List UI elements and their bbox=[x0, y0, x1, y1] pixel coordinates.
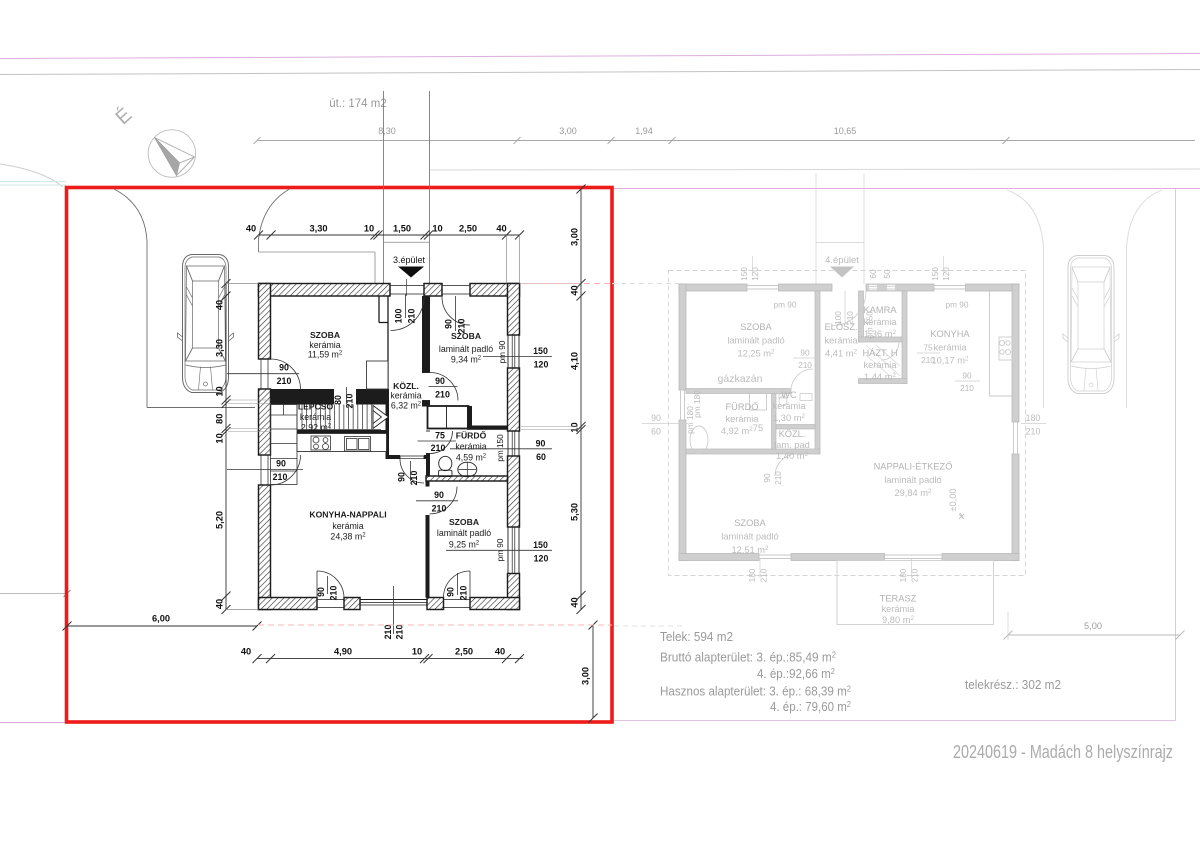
svg-text:210: 210 bbox=[432, 504, 447, 514]
svg-text:KONYHA: KONYHA bbox=[930, 329, 970, 339]
svg-text:120: 120 bbox=[534, 554, 549, 564]
svg-text:laminált padló: laminált padló bbox=[727, 336, 784, 346]
svg-text:TERASZ: TERASZ bbox=[880, 594, 917, 604]
svg-text:laminált padló: laminált padló bbox=[721, 532, 778, 542]
svg-text:4,10: 4,10 bbox=[570, 352, 580, 370]
svg-text:150: 150 bbox=[533, 540, 548, 550]
svg-text:120: 120 bbox=[534, 360, 549, 370]
svg-text:180: 180 bbox=[747, 568, 757, 582]
svg-text:60: 60 bbox=[868, 269, 878, 279]
svg-text:90: 90 bbox=[276, 459, 286, 469]
svg-text:9,34 m2: 9,34 m2 bbox=[451, 355, 482, 365]
svg-text:laminált padló: laminált padló bbox=[884, 475, 941, 485]
svg-text:90: 90 bbox=[434, 490, 444, 500]
svg-text:4,90: 4,90 bbox=[334, 647, 352, 657]
svg-text:60: 60 bbox=[651, 427, 661, 437]
svg-text:24,38 m2: 24,38 m2 bbox=[330, 532, 366, 542]
svg-text:90: 90 bbox=[446, 587, 456, 597]
svg-text:Telek: 594 m2: Telek: 594 m2 bbox=[660, 629, 733, 644]
svg-text:10: 10 bbox=[364, 224, 374, 234]
svg-text:kerámia: kerámia bbox=[933, 343, 967, 353]
svg-text:12,51 m2: 12,51 m2 bbox=[731, 545, 769, 555]
svg-text:9,80 m2: 9,80 m2 bbox=[882, 615, 914, 625]
svg-text:90: 90 bbox=[316, 587, 326, 597]
svg-text:1,40 m2: 1,40 m2 bbox=[776, 451, 808, 461]
svg-text:1,50: 1,50 bbox=[393, 224, 411, 234]
svg-text:40: 40 bbox=[215, 599, 225, 609]
svg-text:3,30: 3,30 bbox=[309, 224, 327, 234]
svg-text:pm 90: pm 90 bbox=[945, 300, 968, 310]
svg-text:120: 120 bbox=[941, 267, 951, 281]
svg-text:pm 180: pm 180 bbox=[692, 390, 702, 418]
svg-text:Hasznos alapterület: 3. ép.: 6: Hasznos alapterület: 3. ép.: 68,39 m2 bbox=[660, 684, 851, 699]
svg-text:±0,00: ±0,00 bbox=[948, 488, 958, 511]
svg-text:100: 100 bbox=[394, 309, 404, 324]
svg-text:40: 40 bbox=[496, 224, 506, 234]
svg-text:SZOBA: SZOBA bbox=[310, 330, 340, 340]
svg-text:90: 90 bbox=[536, 438, 546, 448]
svg-text:2,92 m2: 2,92 m2 bbox=[301, 423, 332, 433]
svg-text:210: 210 bbox=[773, 471, 783, 485]
svg-text:ELŐSZ.: ELŐSZ. bbox=[824, 322, 857, 332]
svg-text:60: 60 bbox=[536, 452, 546, 462]
svg-text:50: 50 bbox=[882, 269, 892, 279]
svg-text:90: 90 bbox=[397, 472, 407, 482]
svg-text:40: 40 bbox=[246, 224, 256, 234]
svg-text:3,00: 3,00 bbox=[581, 667, 591, 685]
svg-text:20240619 - Madách 8 helyszínra: 20240619 - Madách 8 helyszínrajz bbox=[953, 741, 1173, 762]
svg-text:3,30: 3,30 bbox=[215, 339, 225, 357]
svg-text:150: 150 bbox=[739, 267, 749, 281]
svg-text:5,30: 5,30 bbox=[570, 503, 580, 521]
svg-text:LÉPCSŐ: LÉPCSŐ bbox=[298, 401, 334, 412]
svg-text:4,59 m2: 4,59 m2 bbox=[456, 452, 487, 462]
svg-text:HÁZT. H: HÁZT. H bbox=[862, 348, 897, 358]
svg-text:90: 90 bbox=[435, 376, 445, 386]
svg-text:3,00: 3,00 bbox=[570, 228, 580, 246]
svg-text:10: 10 bbox=[570, 422, 580, 432]
svg-text:10,17 m2: 10,17 m2 bbox=[931, 356, 969, 366]
svg-text:kerámia: kerámia bbox=[309, 340, 340, 350]
svg-text:kerámia: kerámia bbox=[455, 441, 486, 451]
svg-text:gázkazán: gázkazán bbox=[718, 373, 763, 385]
svg-text:10: 10 bbox=[215, 433, 225, 443]
svg-text:2,50: 2,50 bbox=[459, 224, 477, 234]
svg-text:lam. pad: lam. pad bbox=[774, 440, 810, 450]
svg-text:40: 40 bbox=[241, 647, 251, 657]
svg-text:6,32 m2: 6,32 m2 bbox=[391, 401, 422, 411]
svg-text:SZOBA: SZOBA bbox=[449, 517, 479, 527]
svg-text:40: 40 bbox=[495, 647, 505, 657]
svg-text:80: 80 bbox=[333, 395, 343, 405]
svg-text:210: 210 bbox=[345, 394, 355, 409]
svg-text:laminált padló: laminált padló bbox=[439, 344, 493, 354]
svg-text:1,44 m2: 1,44 m2 bbox=[864, 372, 896, 382]
svg-text:210: 210 bbox=[329, 586, 339, 601]
svg-text:90: 90 bbox=[279, 363, 289, 373]
svg-text:29,84 m2: 29,84 m2 bbox=[894, 488, 932, 498]
svg-text:FÜRDŐ: FÜRDŐ bbox=[725, 402, 758, 412]
svg-text:4. ép.: 79,60 m2: 4. ép.: 79,60 m2 bbox=[770, 699, 851, 714]
svg-text:kerámia: kerámia bbox=[300, 412, 331, 422]
svg-text:210: 210 bbox=[435, 390, 450, 400]
svg-text:kerámia: kerámia bbox=[881, 604, 915, 614]
svg-text:90: 90 bbox=[444, 319, 454, 329]
svg-text:180: 180 bbox=[1026, 413, 1041, 423]
svg-text:2,50: 2,50 bbox=[455, 647, 473, 657]
svg-text:laminált padló: laminált padló bbox=[437, 528, 491, 538]
svg-text:4.épület: 4.épület bbox=[825, 255, 859, 266]
svg-text:210: 210 bbox=[395, 625, 405, 640]
svg-text:pm 150: pm 150 bbox=[496, 434, 505, 462]
svg-text:FÜRDŐ: FÜRDŐ bbox=[456, 429, 487, 440]
svg-text:90: 90 bbox=[962, 371, 972, 381]
svg-text:út.: 174 m2: út.: 174 m2 bbox=[329, 98, 387, 110]
svg-text:75: 75 bbox=[435, 431, 445, 441]
svg-text:kerámia: kerámia bbox=[824, 336, 858, 346]
svg-text:210: 210 bbox=[409, 471, 419, 486]
svg-text:210: 210 bbox=[273, 472, 288, 482]
svg-text:210: 210 bbox=[960, 383, 974, 393]
svg-text:150: 150 bbox=[533, 346, 548, 356]
svg-text:180: 180 bbox=[898, 568, 908, 582]
svg-text:120: 120 bbox=[750, 267, 760, 281]
svg-text:10,65: 10,65 bbox=[834, 126, 857, 136]
svg-text:10: 10 bbox=[215, 386, 225, 396]
svg-text:pm 90: pm 90 bbox=[498, 340, 507, 363]
svg-text:40: 40 bbox=[570, 597, 580, 607]
svg-text:8,30: 8,30 bbox=[378, 126, 396, 136]
svg-text:90: 90 bbox=[762, 473, 772, 483]
svg-text:10: 10 bbox=[412, 647, 422, 657]
svg-text:210: 210 bbox=[798, 360, 812, 370]
svg-text:150: 150 bbox=[930, 267, 940, 281]
svg-text:210: 210 bbox=[407, 309, 417, 324]
svg-text:kerámia: kerámia bbox=[772, 401, 806, 411]
svg-text:kerámia: kerámia bbox=[332, 521, 363, 531]
svg-text:SZOBA: SZOBA bbox=[451, 331, 481, 341]
svg-text:210: 210 bbox=[1026, 427, 1041, 437]
svg-text:210: 210 bbox=[277, 376, 292, 386]
svg-text:4. ép.:92,66 m2: 4. ép.:92,66 m2 bbox=[757, 666, 835, 681]
svg-text:80: 80 bbox=[215, 414, 225, 424]
svg-text:kerámia: kerámia bbox=[390, 391, 421, 401]
svg-text:75: 75 bbox=[923, 343, 933, 353]
svg-text:pm 90: pm 90 bbox=[496, 538, 505, 561]
svg-text:90: 90 bbox=[651, 413, 661, 423]
svg-text:pm 150: pm 150 bbox=[865, 311, 875, 339]
svg-text:5,00: 5,00 bbox=[1084, 621, 1102, 631]
svg-text:SZOBA: SZOBA bbox=[734, 518, 766, 528]
svg-text:210: 210 bbox=[459, 586, 469, 601]
svg-text:90: 90 bbox=[800, 348, 810, 358]
svg-text:210: 210 bbox=[383, 625, 393, 640]
svg-text:1,94: 1,94 bbox=[635, 126, 653, 136]
svg-text:4,41 m2: 4,41 m2 bbox=[825, 349, 857, 359]
svg-text:KONYHA-NAPPALI: KONYHA-NAPPALI bbox=[309, 510, 386, 520]
svg-text:KÖZL.: KÖZL. bbox=[393, 381, 419, 391]
svg-text:Bruttó alapterület: 3. ép.:85,: Bruttó alapterület: 3. ép.:85,49 m2 bbox=[660, 650, 836, 665]
svg-text:11,59 m2: 11,59 m2 bbox=[308, 350, 343, 360]
svg-text:40: 40 bbox=[570, 285, 580, 295]
svg-text:KÖZL.: KÖZL. bbox=[779, 429, 806, 439]
svg-text:40: 40 bbox=[215, 300, 225, 310]
svg-text:1,30 m2: 1,30 m2 bbox=[773, 413, 805, 423]
svg-text:12,25 m2: 12,25 m2 bbox=[737, 349, 775, 359]
svg-text:pm 90: pm 90 bbox=[773, 300, 796, 310]
svg-text:6,00: 6,00 bbox=[152, 614, 170, 624]
svg-text:3.épület: 3.épület bbox=[393, 255, 425, 266]
svg-text:210: 210 bbox=[910, 568, 920, 582]
svg-text:kerámia: kerámia bbox=[863, 360, 897, 370]
svg-text:9,25 m2: 9,25 m2 bbox=[449, 540, 480, 550]
svg-text:NAPPALI-ÉTKEZŐ: NAPPALI-ÉTKEZŐ bbox=[874, 462, 953, 472]
svg-text:5,20: 5,20 bbox=[215, 511, 225, 529]
svg-text:telekrész.: 302 m2: telekrész.: 302 m2 bbox=[965, 677, 1061, 692]
svg-text:10: 10 bbox=[432, 224, 442, 234]
svg-text:SZOBA: SZOBA bbox=[740, 322, 772, 332]
svg-text:3,00: 3,00 bbox=[559, 126, 577, 136]
svg-text:210: 210 bbox=[431, 443, 446, 453]
svg-text:WC: WC bbox=[781, 390, 797, 400]
